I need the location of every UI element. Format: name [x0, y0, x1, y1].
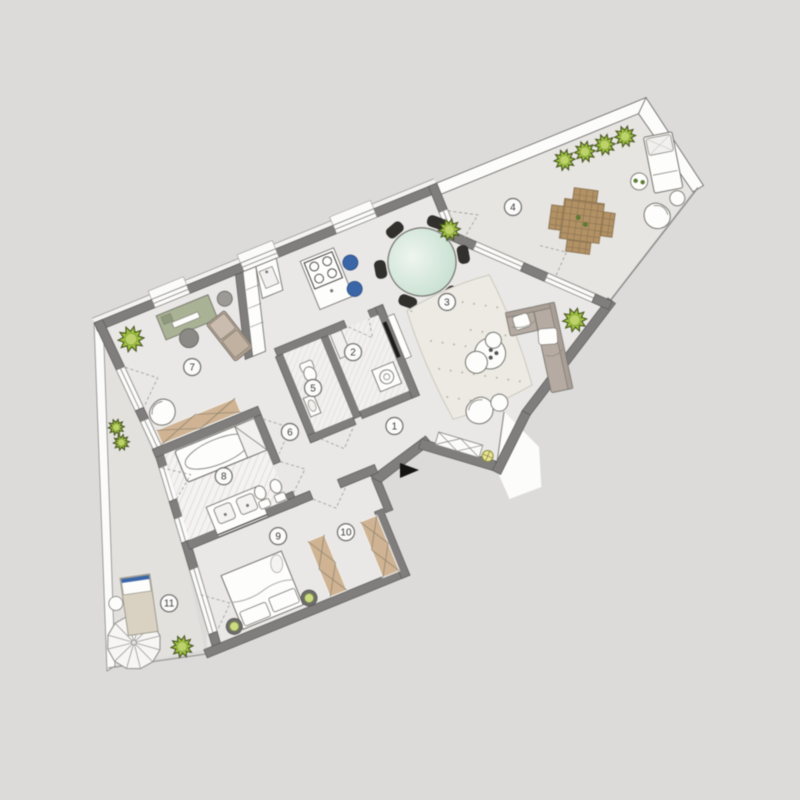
- svg-text:1: 1: [392, 421, 398, 432]
- svg-text:11: 11: [164, 599, 175, 610]
- svg-text:7: 7: [189, 362, 195, 373]
- svg-text:2: 2: [350, 348, 356, 359]
- svg-text:10: 10: [340, 528, 352, 539]
- svg-text:8: 8: [221, 472, 227, 483]
- svg-text:3: 3: [444, 297, 450, 308]
- svg-text:4: 4: [510, 202, 516, 213]
- svg-text:9: 9: [275, 532, 281, 543]
- svg-text:6: 6: [287, 427, 293, 438]
- svg-text:5: 5: [310, 383, 316, 394]
